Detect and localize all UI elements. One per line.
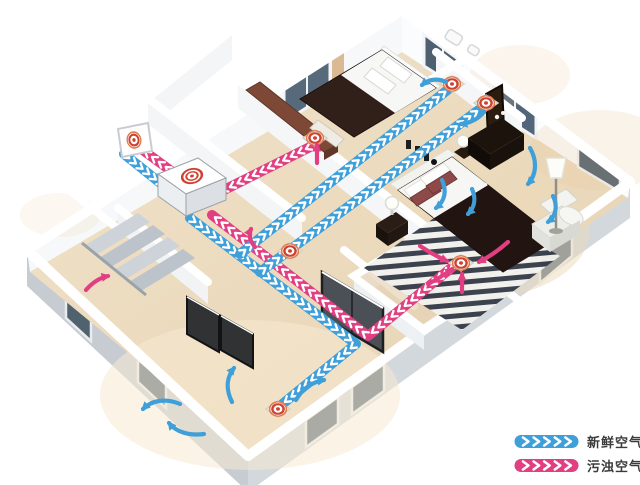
fresh-air-ribbon (514, 434, 580, 449)
fresh-air-label: 新鲜空气 (587, 432, 640, 451)
table-lamp (386, 197, 399, 210)
floor-lamp-shade (546, 158, 566, 178)
wall-shelf-item (431, 159, 437, 165)
stale-air-ribbon (514, 458, 580, 473)
stale-air-label: 污浊空气 (587, 456, 640, 475)
wall-shelf-item (406, 140, 411, 149)
legend-item-stale-air: 污浊空气 (514, 458, 640, 473)
floorplan-svg (0, 0, 640, 485)
legend: 新鲜空气 污浊空气 (514, 434, 640, 473)
legend-item-fresh-air: 新鲜空气 (514, 434, 640, 449)
floor-lamp-base (549, 228, 563, 234)
outdoor-wall-vent-icon (118, 123, 152, 157)
table-lamp (457, 135, 469, 147)
ventilation-diagram: 新鲜空气 污浊空气 (0, 0, 640, 485)
